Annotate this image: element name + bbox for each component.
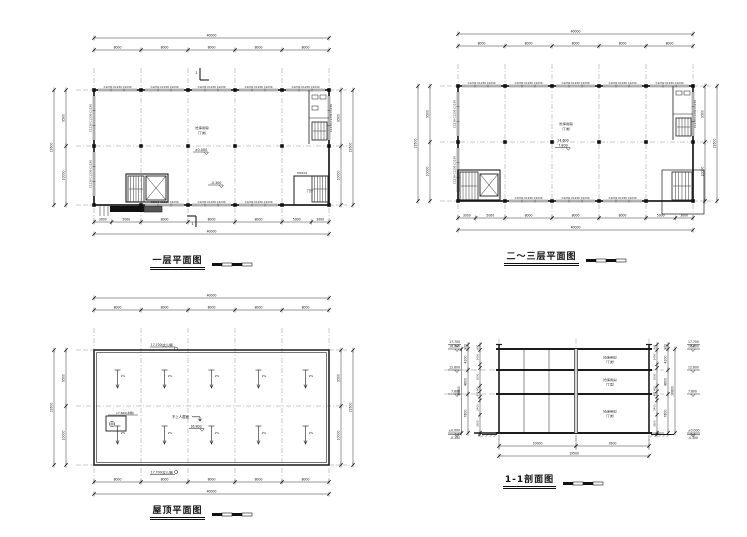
svg-text:3000: 3000 [652, 373, 656, 380]
svg-text:-0.300: -0.300 [688, 436, 698, 440]
roof-title: 屋顶平面图 [150, 503, 204, 518]
svg-text:7800: 7800 [463, 410, 467, 418]
floor23-plan-drawing: 4000080008000800080008000300050008000800… [410, 26, 722, 248]
svg-text:±0.000: ±0.000 [195, 148, 208, 152]
svg-text:2%: 2% [262, 374, 267, 378]
svg-text:-0.300: -0.300 [211, 181, 222, 185]
svg-text:2400: 2400 [475, 404, 479, 411]
svg-text:C1230 C1230 C1230: C1230 C1230 C1230 [245, 200, 273, 204]
svg-text:9500: 9500 [336, 114, 340, 122]
svg-text:8000: 8000 [302, 306, 310, 310]
svg-text:C1230 C1230 C1230: C1230 C1230 C1230 [151, 85, 179, 89]
floor23-title: 二～三层平面图 [504, 249, 578, 264]
svg-text:C1230 C1230 C1230: C1230 C1230 C1230 [693, 100, 697, 128]
svg-text:5000: 5000 [122, 218, 130, 222]
svg-text:8000: 8000 [208, 46, 216, 50]
walls [94, 350, 329, 465]
svg-text:900: 900 [475, 386, 479, 391]
svg-text:1: 1 [191, 222, 193, 226]
svg-text:±0.000: ±0.000 [449, 429, 460, 433]
inner-dim-right: 9002400300090090024003000 [652, 342, 658, 437]
svg-text:40000: 40000 [207, 490, 217, 494]
floor23-scale-bar [586, 258, 628, 263]
svg-text:900: 900 [652, 386, 656, 391]
svg-text:9500: 9500 [336, 374, 340, 382]
svg-text:9500: 9500 [609, 442, 617, 446]
floor1-title-row: 一层平面图 [46, 253, 358, 268]
svg-text:M1524: M1524 [297, 171, 307, 175]
svg-text:8000: 8000 [525, 42, 533, 46]
svg-text:8000: 8000 [114, 306, 122, 310]
svg-text:8000: 8000 [208, 478, 216, 482]
svg-text:2%: 2% [215, 431, 220, 435]
svg-text:4800: 4800 [463, 378, 467, 386]
svg-text:3000: 3000 [316, 218, 324, 222]
svg-text:C1230 C1230 C1230: C1230 C1230 C1230 [292, 85, 320, 89]
svg-text:9500: 9500 [61, 114, 65, 122]
svg-text:7.800: 7.800 [558, 144, 567, 148]
svg-text:9500: 9500 [61, 374, 65, 382]
section-title: 1-1剖面图 [503, 472, 556, 487]
svg-text:C1230 C1230 C1230: C1230 C1230 C1230 [515, 196, 543, 200]
interior: 2%2%2%2%2%2%2%2%2%2%不上人屋面16.80017.700(女儿… [106, 342, 314, 475]
structure [474, 345, 674, 438]
svg-text:（丁类）: （丁类） [196, 130, 208, 135]
svg-text:C1230 C1230 C1230: C1230 C1230 C1230 [245, 85, 273, 89]
svg-text:8000: 8000 [525, 214, 533, 218]
svg-text:C1230 C1230 C1230: C1230 C1230 C1230 [104, 85, 132, 89]
floor23-plan-panel: 4000080008000800080008000300050008000800… [410, 26, 722, 264]
svg-text:4800: 4800 [663, 378, 667, 386]
svg-text:3000: 3000 [463, 214, 471, 218]
svg-text:900: 900 [475, 344, 479, 349]
svg-text:C1230 C1230 C1230: C1230 C1230 C1230 [89, 104, 93, 132]
plan-root: 4000080008000800080008000800080008000800… [49, 294, 354, 497]
svg-text:5000: 5000 [486, 214, 494, 218]
svg-text:900: 900 [652, 344, 656, 349]
svg-text:2%: 2% [262, 431, 267, 435]
svg-text:16.800: 16.800 [688, 345, 699, 349]
svg-text:7.800: 7.800 [451, 390, 460, 394]
svg-text:C1230 C1230 C1230: C1230 C1230 C1230 [453, 156, 457, 184]
svg-text:12.600: 12.600 [449, 366, 460, 370]
svg-text:8000: 8000 [161, 306, 169, 310]
svg-text:2%: 2% [121, 431, 126, 435]
svg-text:8000: 8000 [161, 46, 169, 50]
svg-text:19500: 19500 [348, 403, 352, 413]
svg-text:17.700(女儿墙): 17.700(女儿墙) [151, 470, 174, 475]
svg-text:2%: 2% [168, 431, 173, 435]
roof-scale-bar [212, 512, 254, 517]
svg-text:17.700: 17.700 [688, 340, 699, 344]
svg-text:C1230 C1230 C1230: C1230 C1230 C1230 [89, 160, 93, 188]
svg-text:4200: 4200 [463, 356, 467, 364]
svg-text:3000: 3000 [99, 218, 107, 222]
svg-text:5000: 5000 [293, 218, 301, 222]
svg-text:19500: 19500 [348, 143, 352, 153]
svg-text:900: 900 [475, 391, 479, 396]
svg-text:2400: 2400 [652, 404, 656, 411]
svg-text:40000: 40000 [207, 34, 217, 38]
svg-text:8000: 8000 [114, 46, 122, 50]
svg-text:C1230 C1230 C1230: C1230 C1230 C1230 [562, 81, 590, 85]
roof-plan-drawing: 4000080008000800080008000800080008000800… [46, 290, 358, 502]
svg-text:C1230 C1230 C1230: C1230 C1230 C1230 [515, 81, 543, 85]
svg-text:8000: 8000 [208, 218, 216, 222]
floor23-title-row: 二～三层平面图 [410, 249, 722, 264]
section-title-row: 1-1剖面图 [404, 472, 704, 487]
labels: （仓库用房）（丁类）（仓库用房）（丁类）（仓库用房）（丁类） [601, 354, 619, 418]
svg-text:C1230 C1230 C1230: C1230 C1230 C1230 [453, 100, 457, 128]
svg-text:不上人屋面: 不上人屋面 [172, 414, 190, 419]
svg-text:40000: 40000 [207, 230, 217, 234]
svg-text:17.600(水箱): 17.600(水箱) [116, 410, 134, 415]
svg-text:C1230 C1230 C1230: C1230 C1230 C1230 [329, 104, 333, 132]
svg-text:8000: 8000 [572, 214, 580, 218]
svg-text:10000: 10000 [336, 171, 340, 181]
plan-root: 4000080008000800080008000300050008000800… [49, 34, 354, 237]
svg-text:900: 900 [463, 344, 467, 350]
svg-text:19500: 19500 [413, 139, 417, 149]
svg-text:8000: 8000 [666, 42, 674, 46]
svg-text:17.700: 17.700 [449, 340, 460, 344]
inner-dim-left: 9002400300090090024003000 [475, 342, 481, 437]
svg-text:8000: 8000 [161, 478, 169, 482]
svg-text:2%: 2% [309, 431, 314, 435]
svg-text:（仓库用房）: （仓库用房） [601, 377, 619, 382]
svg-text:8000: 8000 [255, 306, 263, 310]
svg-text:1: 1 [195, 71, 197, 75]
svg-text:2%: 2% [121, 374, 126, 378]
svg-text:10000: 10000 [61, 171, 65, 181]
svg-text:8000: 8000 [478, 42, 486, 46]
svg-text:16.800: 16.800 [190, 425, 202, 429]
svg-text:C1230 C1230 C1230: C1230 C1230 C1230 [562, 196, 590, 200]
svg-text:10000: 10000 [533, 442, 543, 446]
svg-text:4200: 4200 [663, 356, 667, 364]
section-scale-bar [563, 481, 605, 486]
svg-text:8000: 8000 [114, 478, 122, 482]
svg-text:2%: 2% [309, 374, 314, 378]
svg-text:8000: 8000 [302, 46, 310, 50]
svg-text:9500: 9500 [700, 110, 704, 118]
floor1-scale-bar [212, 262, 254, 267]
levels: 17.70017.70016.80016.80012.60012.6007.80… [448, 340, 700, 440]
svg-text:2%: 2% [168, 374, 173, 378]
dimensions: 4000080008000800080008000800080008000800… [49, 294, 354, 497]
svg-text:（仓库用房）: （仓库用房） [193, 125, 212, 130]
section-panel: 9004200480078001680090042004800780016800… [404, 303, 704, 487]
svg-text:7800: 7800 [663, 410, 667, 418]
svg-text:19500: 19500 [49, 403, 53, 413]
svg-text:12.600: 12.600 [688, 366, 699, 370]
plan-root: 4000080008000800080008000300050008000800… [413, 30, 718, 233]
interior: （仓库用房）（丁类）14.6007.800 [458, 86, 704, 214]
svg-text:3000: 3000 [475, 420, 479, 427]
svg-text:（丁类）: （丁类） [604, 359, 616, 364]
svg-text:14.600: 14.600 [557, 139, 569, 143]
svg-text:8000: 8000 [161, 218, 169, 222]
svg-text:900: 900 [663, 344, 667, 350]
grid-lines [76, 328, 347, 483]
svg-text:40000: 40000 [571, 30, 581, 34]
svg-text:2%: 2% [215, 374, 220, 378]
svg-text:C1230 C1230 C1230: C1230 C1230 C1230 [198, 85, 226, 89]
svg-text:16800: 16800 [670, 386, 674, 396]
svg-text:C1230 C1230 C1230: C1230 C1230 C1230 [198, 200, 226, 204]
svg-text:C1230 C1230 C1230: C1230 C1230 C1230 [656, 81, 684, 85]
svg-text:8000: 8000 [208, 306, 216, 310]
svg-text:8000: 8000 [302, 478, 310, 482]
svg-text:10000: 10000 [336, 431, 340, 441]
svg-text:-0.300: -0.300 [450, 436, 460, 440]
svg-text:19500: 19500 [49, 143, 53, 153]
section-drawing: 9004200480078001680090042004800780016800… [404, 303, 704, 471]
svg-text:8000: 8000 [255, 46, 263, 50]
svg-text:3000: 3000 [475, 373, 479, 380]
svg-text:（仓库用房）: （仓库用房） [601, 354, 619, 359]
floor1-plan-drawing: 4000080008000800080008000300050008000800… [46, 30, 358, 252]
svg-text:2400: 2400 [475, 354, 479, 361]
svg-text:7.800: 7.800 [688, 390, 697, 394]
svg-text:（仓库用房）: （仓库用房） [557, 121, 576, 126]
svg-text:19500: 19500 [569, 452, 579, 456]
svg-text:19500: 19500 [712, 139, 716, 149]
svg-text:9500: 9500 [425, 110, 429, 118]
svg-text:（丁类）: （丁类） [604, 413, 616, 418]
svg-text:C1230 C1230 C1230: C1230 C1230 C1230 [468, 81, 496, 85]
svg-text:40000: 40000 [571, 226, 581, 230]
svg-text:900: 900 [652, 391, 656, 396]
dimensions: 9004200480078001680090042004800780016800… [457, 342, 677, 459]
svg-text:8000: 8000 [255, 218, 263, 222]
svg-text:C1230 C1230 C1230: C1230 C1230 C1230 [609, 196, 637, 200]
svg-text:16.800: 16.800 [449, 345, 460, 349]
svg-text:（丁类）: （丁类） [604, 381, 616, 386]
roof-plan-panel: 4000080008000800080008000800080008000800… [46, 290, 358, 518]
floor1-title: 一层平面图 [150, 253, 204, 268]
svg-text:2400: 2400 [652, 354, 656, 361]
svg-text:±0.000: ±0.000 [688, 429, 699, 433]
svg-text:（仓库用房）: （仓库用房） [601, 408, 619, 413]
svg-text:10000: 10000 [61, 431, 65, 441]
section-root: 9004200480078001680090042004800780016800… [444, 339, 700, 459]
svg-text:（丁类）: （丁类） [560, 126, 572, 131]
svg-text:8000: 8000 [255, 478, 263, 482]
roof-title-row: 屋顶平面图 [46, 503, 358, 518]
svg-text:8000: 8000 [619, 214, 627, 218]
floor1-plan-panel: 4000080008000800080008000300050008000800… [46, 30, 358, 268]
svg-text:门厅: 门厅 [307, 188, 314, 193]
svg-text:8000: 8000 [572, 42, 580, 46]
svg-text:10000: 10000 [425, 167, 429, 177]
svg-text:3000: 3000 [652, 420, 656, 427]
svg-text:17.700(女儿墙): 17.700(女儿墙) [151, 342, 174, 347]
svg-text:C1230 C1230 C1230: C1230 C1230 C1230 [609, 81, 637, 85]
drawing-sheet: 4000080008000800080008000300050008000800… [0, 0, 747, 537]
svg-text:40000: 40000 [207, 294, 217, 298]
svg-text:8000: 8000 [619, 42, 627, 46]
